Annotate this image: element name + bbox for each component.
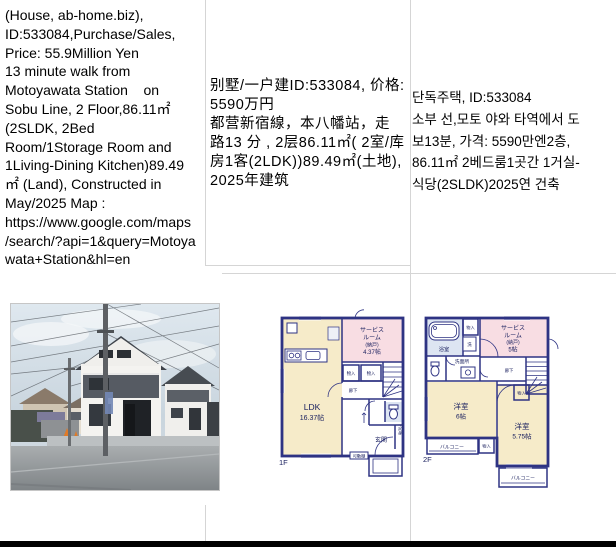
- floorplan-2f-image: 浴室 物入 洗 洗面所 サービス ルーム (納戸) 5帖 廊下 洋室 6帖 洋室…: [416, 309, 566, 511]
- label-hall-1f: 廊下: [349, 387, 358, 394]
- label-service2: ルーム: [363, 335, 381, 342]
- porch-1f: [369, 456, 402, 476]
- label-closet-2a: 物入: [466, 324, 475, 331]
- label-ldk-size: 16.37帖: [300, 413, 325, 422]
- bottom-border-bar: [0, 541, 616, 547]
- label-washroom: 洗面所: [455, 358, 470, 365]
- label-room1-size: 6帖: [456, 412, 467, 421]
- label-ldk: LDK: [304, 402, 321, 412]
- column-gridline-1-lower: [205, 505, 206, 541]
- label-service3: (納戸): [365, 342, 379, 349]
- column-gridline-1: [205, 0, 206, 265]
- listing-text-korean: 단독주택, ID:533084 소부 선,모토 야와 타역에서 도 보13분, …: [412, 87, 616, 201]
- row-gridline-a: [205, 265, 410, 266]
- bathtub-icon: [429, 322, 459, 340]
- toilet-icon-2f: [431, 362, 439, 376]
- label-floor-1f: 1F: [279, 458, 288, 467]
- cupboard-icon: [328, 327, 339, 340]
- label-closet-a: 物入: [347, 370, 356, 377]
- label-room2: 洋室: [515, 421, 530, 431]
- label-service3-2f: (納戸): [506, 339, 520, 346]
- label-service1: サービス: [360, 326, 384, 334]
- label-closet-2c: 物入: [482, 443, 491, 450]
- label-service-size: 4.37帖: [363, 348, 381, 356]
- listing-text-chinese: 别墅/一户建ID:533084, 价格: 5590万円 都营新宿線，本八幡站，走…: [210, 77, 410, 197]
- label-balcony-right: バルコニー: [511, 476, 535, 482]
- label-balcony-left: バルコニー: [440, 445, 464, 451]
- label-shoebox: 下足箱: [398, 423, 404, 435]
- row-gridline-b: [222, 273, 616, 274]
- washstand-icon: [461, 367, 475, 378]
- label-service1-2f: サービス: [501, 324, 525, 332]
- house-photo-image: [11, 304, 219, 490]
- label-floor-2f: 2F: [423, 455, 432, 464]
- label-closet-2b: 物入: [517, 390, 526, 397]
- kitchen-counter: [285, 349, 327, 362]
- storage-box-icon: [287, 323, 297, 333]
- toilet-icon-1f: [389, 405, 398, 419]
- label-room1: 洋室: [454, 401, 469, 411]
- label-closet-b: 物入: [367, 370, 376, 377]
- label-entrance: 玄関: [375, 436, 387, 444]
- label-shelf: 可動棚: [353, 452, 366, 459]
- label-laundry: 洗: [467, 341, 472, 348]
- label-hall-2f: 廊下: [505, 367, 514, 374]
- floorplan-2f[interactable]: 浴室 物入 洗 洗面所 サービス ルーム (納戸) 5帖 廊下 洋室 6帖 洋室…: [416, 309, 566, 516]
- floorplan-1f[interactable]: LDK 16.37帖 サービス ルーム (納戸) 4.37帖 物入 物入 廊下 …: [271, 309, 421, 506]
- house-photo[interactable]: [10, 303, 220, 491]
- label-service-size-2f: 5帖: [508, 346, 517, 354]
- spreadsheet-view: (House, ab-home.biz), ID:533084,Purchase…: [0, 0, 616, 547]
- label-bath: 浴室: [439, 345, 450, 353]
- floorplan-1f-image: LDK 16.37帖 サービス ルーム (納戸) 4.37帖 物入 物入 廊下 …: [271, 309, 421, 501]
- label-room2-size: 5.75帖: [512, 432, 532, 441]
- label-service2-2f: ルーム: [504, 333, 522, 340]
- listing-text-english: (House, ab-home.biz), ID:533084,Purchase…: [5, 6, 205, 274]
